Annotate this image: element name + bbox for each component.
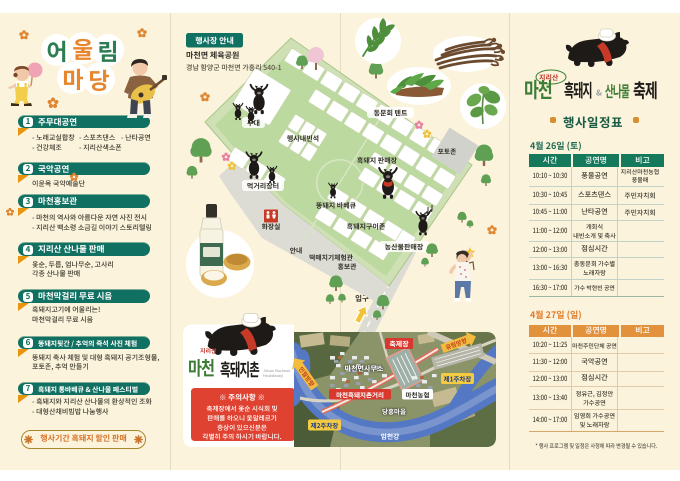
svg-text:행사장 안내: 행사장 안내 xyxy=(195,36,234,47)
svg-text:마천: 마천 xyxy=(188,353,214,381)
svg-text:마천: 마천 xyxy=(524,74,552,104)
svg-text:포토존: 포토존 xyxy=(438,146,457,156)
svg-text:흑돼지: 흑돼지 xyxy=(564,78,592,103)
svg-text:흑돼지촌: 흑돼지촌 xyxy=(220,357,259,382)
svg-text:마천농협: 마천농협 xyxy=(406,390,430,400)
svg-text:흑돼지구이존: 흑돼지구이존 xyxy=(347,222,386,232)
svg-text:마천면 체육공원: 마천면 체육공원 xyxy=(186,50,239,61)
svg-text:제2주차장: 제2주차장 xyxy=(311,420,339,430)
svg-text:경남 함양군 마천면 가흥리 540-1: 경남 함양군 마천면 가흥리 540-1 xyxy=(186,63,282,73)
svg-text:축제: 축제 xyxy=(633,75,657,104)
svg-text:Heukdwaeji: Heukdwaeji xyxy=(263,374,283,379)
svg-text:마천흑돼지촌거리: 마천흑돼지촌거리 xyxy=(336,390,384,400)
svg-text:판매를 하오니 옻알레르기: 판매를 하오니 옻알레르기 xyxy=(207,413,277,423)
svg-text:각별히 주의 하시기 바랍니다.: 각별히 주의 하시기 바랍니다. xyxy=(202,431,281,441)
svg-text:&: & xyxy=(596,88,602,99)
svg-text:화장실: 화장실 xyxy=(262,221,281,231)
svg-text:행사내빈석: 행사내빈석 xyxy=(287,134,319,144)
svg-text:축제장에서 옻순 시식회 및: 축제장에서 옻순 시식회 및 xyxy=(206,403,277,413)
svg-text:홍보관: 홍보관 xyxy=(338,261,358,271)
svg-text:당흥마을: 당흥마을 xyxy=(382,406,406,416)
svg-text:산나물: 산나물 xyxy=(605,79,630,102)
svg-text:농산물판매장: 농산물판매장 xyxy=(385,243,424,253)
svg-text:※ 주의사항 ※: ※ 주의사항 ※ xyxy=(219,392,265,403)
svg-text:임천강: 임천강 xyxy=(381,431,401,441)
svg-text:동문회 텐트: 동문회 텐트 xyxy=(374,109,408,119)
svg-text:똥돼지 바베큐: 똥돼지 바베큐 xyxy=(316,201,357,211)
svg-text:제1주차장: 제1주차장 xyxy=(444,374,472,384)
svg-text:마천면사무소: 마천면사무소 xyxy=(345,364,384,374)
svg-text:흑돼지 판매장: 흑돼지 판매장 xyxy=(357,156,398,166)
svg-text:축제장: 축제장 xyxy=(389,340,409,350)
svg-text:안내: 안내 xyxy=(290,245,303,255)
